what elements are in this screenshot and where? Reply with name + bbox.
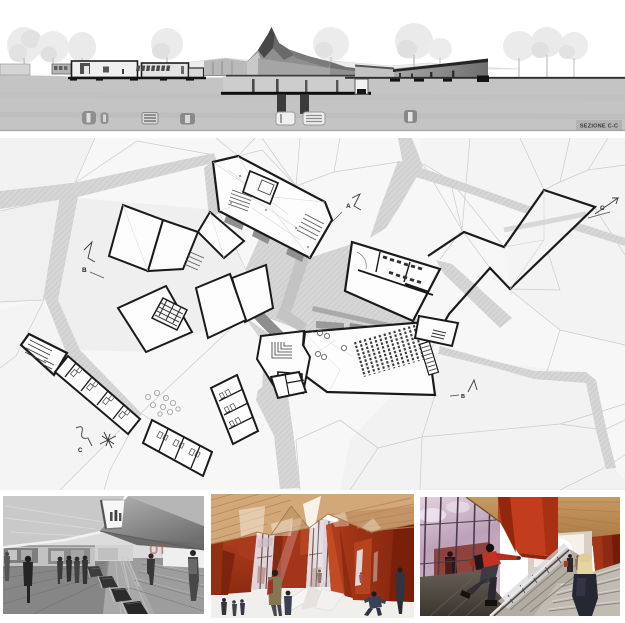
svg-text:B: B — [461, 394, 465, 400]
svg-text:C: C — [78, 448, 83, 454]
svg-text:A: A — [346, 203, 351, 210]
svg-text:SEZIONE C-C: SEZIONE C-C — [580, 124, 618, 130]
svg-text:B: B — [82, 267, 87, 274]
